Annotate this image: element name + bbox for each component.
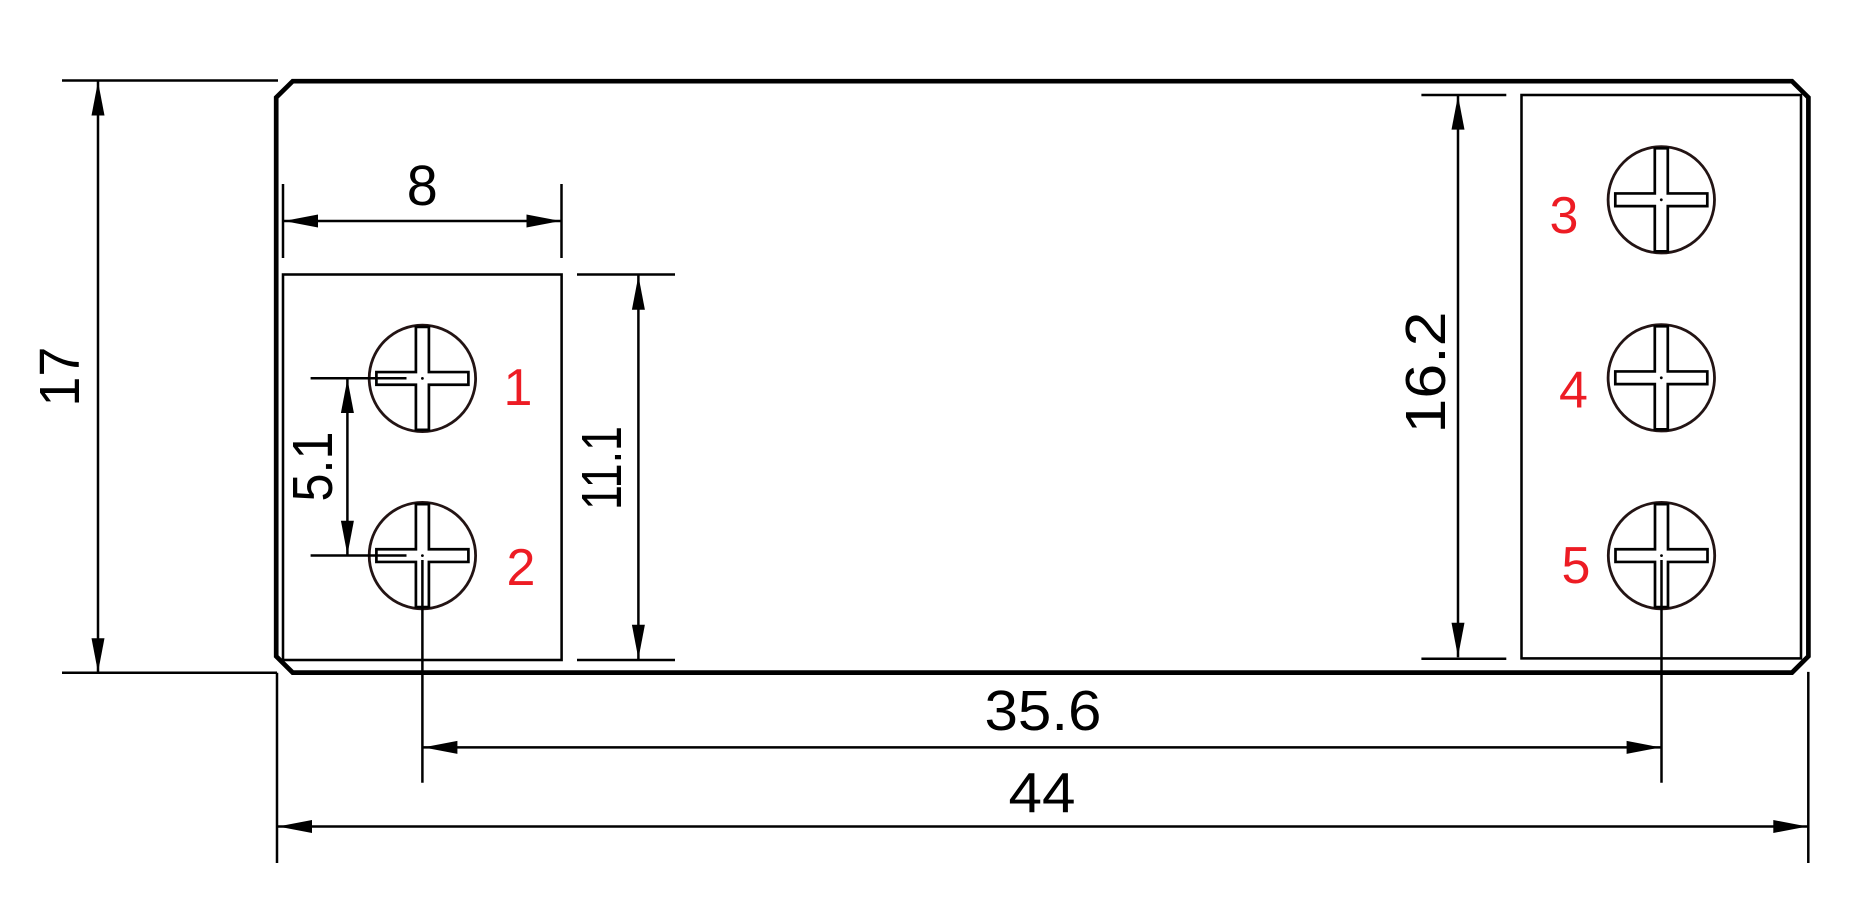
svg-text:8: 8 — [407, 154, 438, 218]
svg-text:1: 1 — [504, 359, 533, 417]
svg-text:17: 17 — [28, 347, 92, 407]
svg-text:5.1: 5.1 — [281, 432, 345, 502]
svg-text:11.1: 11.1 — [570, 426, 634, 510]
svg-text:44: 44 — [1009, 762, 1076, 826]
svg-text:3: 3 — [1550, 187, 1579, 245]
svg-text:35.6: 35.6 — [985, 679, 1102, 743]
svg-text:16.2: 16.2 — [1394, 312, 1458, 434]
svg-text:2: 2 — [507, 539, 536, 597]
svg-text:4: 4 — [1559, 362, 1588, 420]
svg-text:5: 5 — [1562, 537, 1591, 595]
